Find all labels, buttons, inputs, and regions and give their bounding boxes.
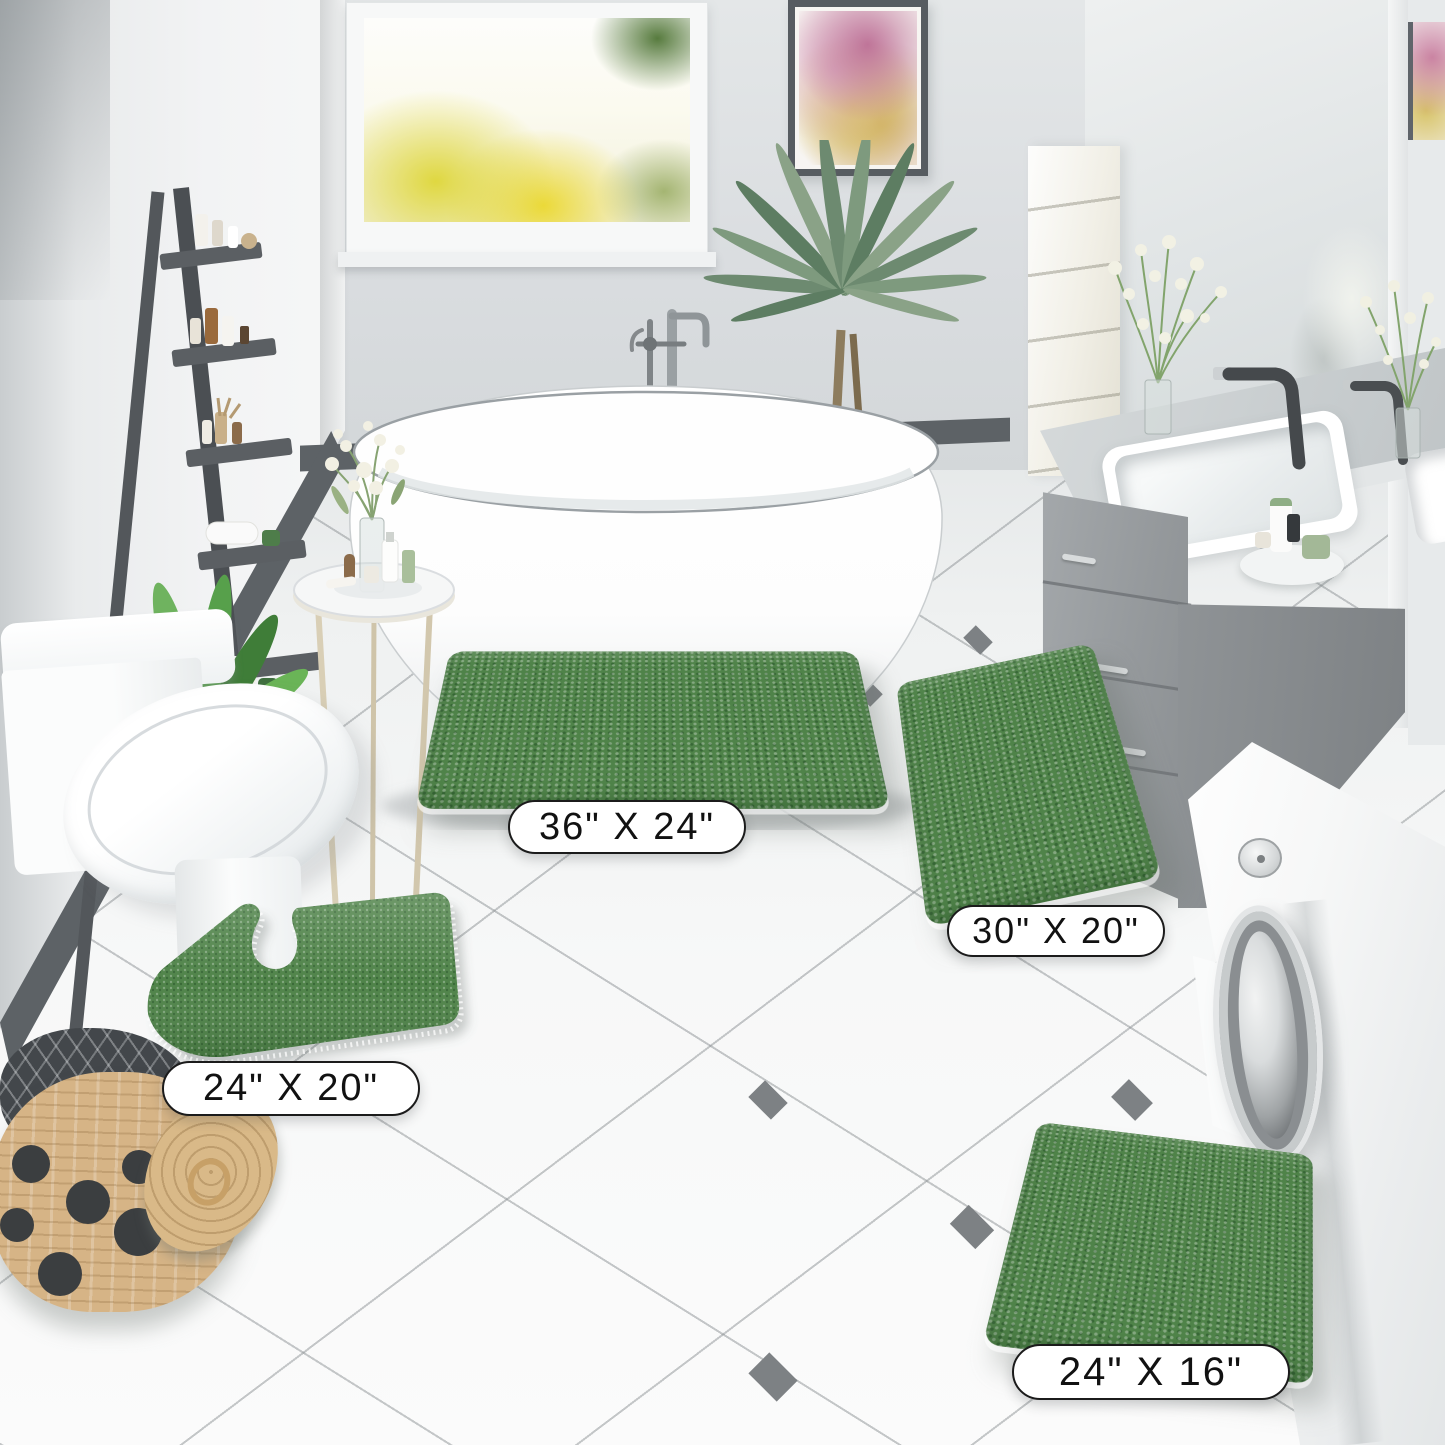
cream-jar bbox=[1302, 535, 1330, 559]
size-label-text: 24" X 20" bbox=[203, 1067, 379, 1110]
basket-dot bbox=[12, 1145, 50, 1183]
window-autumn-trees bbox=[364, 18, 690, 222]
size-label-36x24: 36" X 24" bbox=[508, 800, 746, 854]
size-label-text: 36" X 24" bbox=[539, 806, 715, 849]
size-label-30x20: 30" X 20" bbox=[947, 905, 1165, 957]
size-label-24x20: 24" X 20" bbox=[162, 1061, 420, 1116]
wall-art-corner bbox=[1408, 22, 1445, 140]
corner-flower-vase bbox=[1338, 268, 1445, 478]
window-sill bbox=[338, 252, 716, 267]
bathroom-product-photo: 36" X 24" 30" X 20" 24" X 20" 24" X 16" bbox=[0, 0, 1445, 1445]
size-label-text: 24" X 16" bbox=[1059, 1350, 1243, 1395]
mat-surface bbox=[416, 651, 891, 808]
bath-mat-36x24 bbox=[418, 618, 888, 830]
mat-surface bbox=[896, 643, 1162, 927]
soap-dish bbox=[1255, 532, 1271, 548]
basket-dot bbox=[66, 1180, 110, 1224]
bath-mat-contour-24x20 bbox=[120, 860, 500, 1090]
basket-dot bbox=[0, 1208, 34, 1242]
bath-mat-30x20 bbox=[834, 593, 1200, 951]
window bbox=[346, 2, 708, 254]
size-label-text: 30" X 20" bbox=[972, 910, 1140, 952]
washer-dial bbox=[1238, 838, 1282, 878]
size-label-24x16: 24" X 16" bbox=[1012, 1344, 1290, 1400]
basket-dot bbox=[38, 1252, 82, 1296]
cosmetic-bottle bbox=[1287, 514, 1300, 542]
vanity-flower-vase bbox=[1095, 228, 1245, 438]
